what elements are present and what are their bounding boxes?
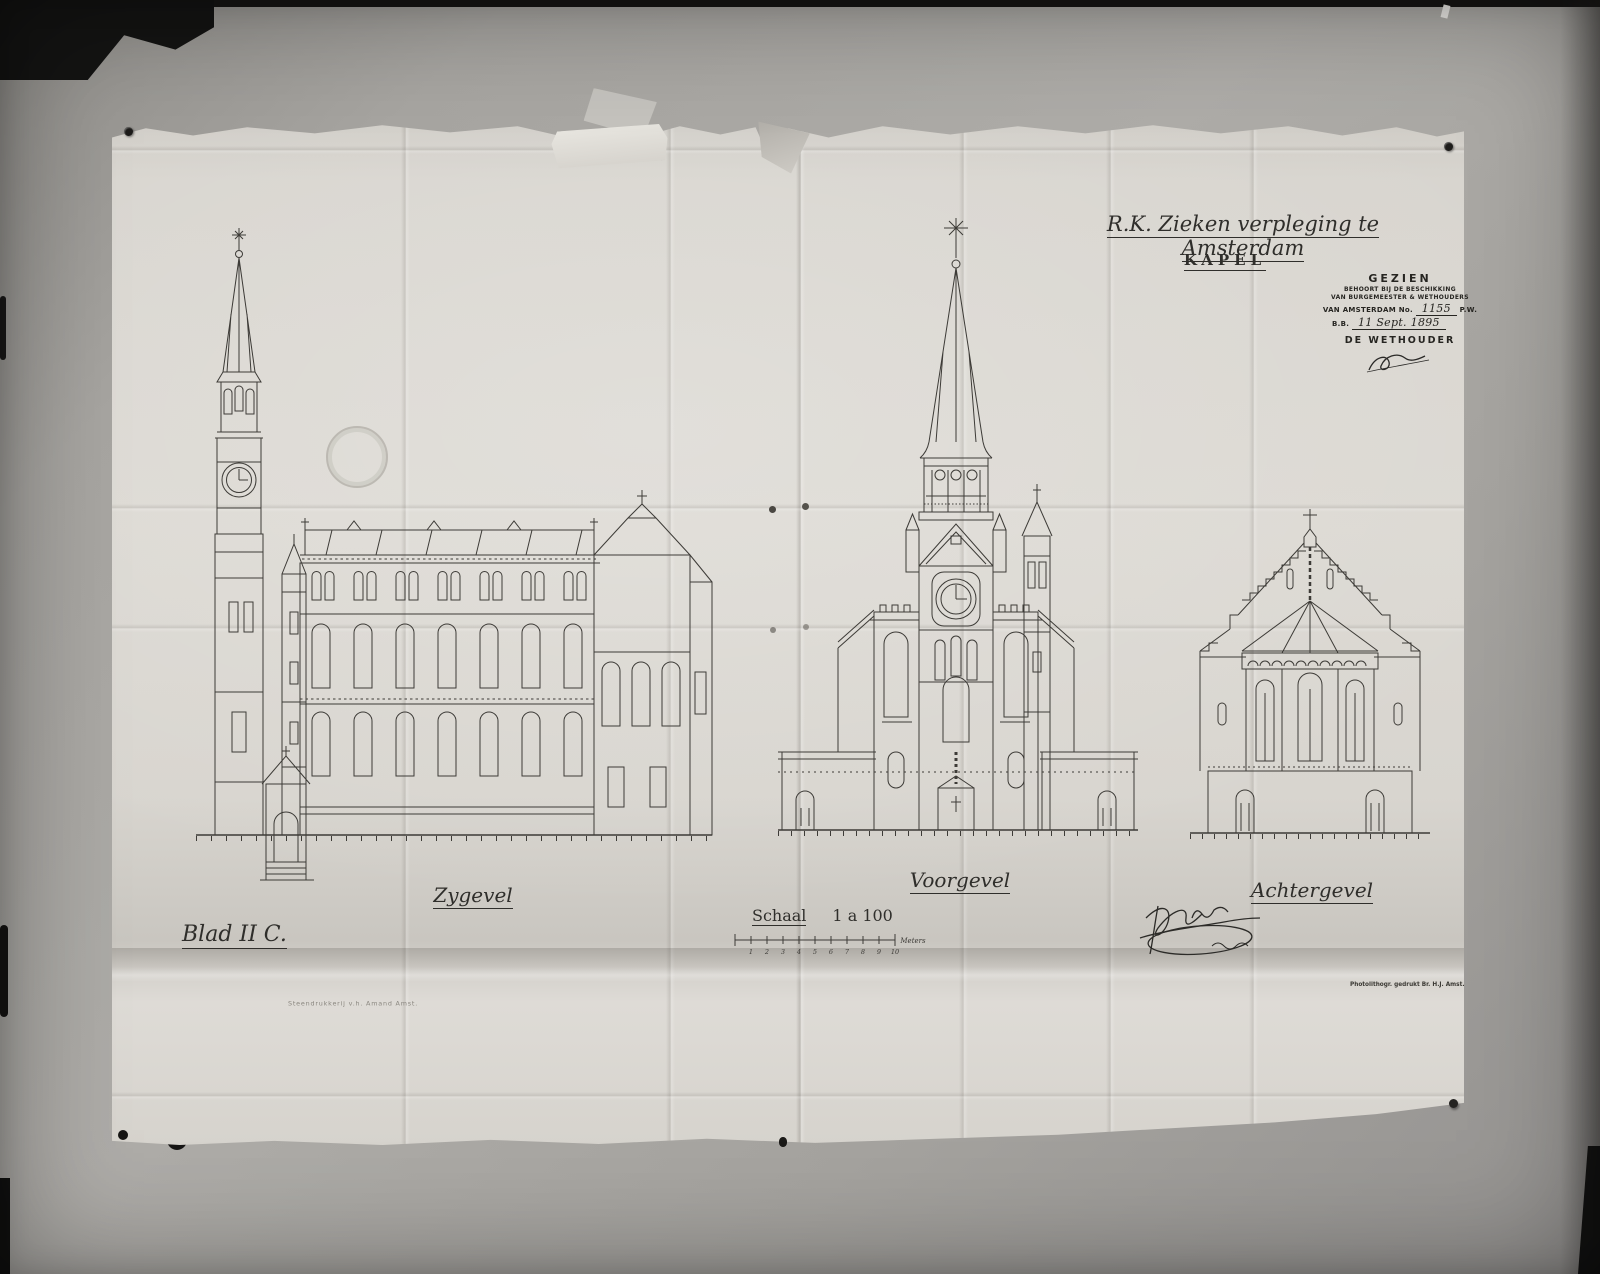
drawing-subtitle: KAPEL xyxy=(1160,250,1290,269)
scale-tick: 9 xyxy=(877,948,881,956)
wall-mark-left-1 xyxy=(0,296,6,360)
wall-dark-corner-top-left xyxy=(0,0,214,80)
wall-pin-glint-top-right xyxy=(1441,4,1451,18)
scale-bar: 1 2 3 4 5 6 7 8 9 10 Meters xyxy=(733,930,933,960)
scale-tick: 4 xyxy=(796,948,801,956)
wall-dark-column-right xyxy=(1560,0,1600,1274)
scale-tick: 1 xyxy=(749,948,753,956)
imprint-right: Photolithogr. gedrukt Br. H.J. Amst. xyxy=(1350,981,1465,987)
imprint-left: Steendrukkerij v.h. Amand Amst. xyxy=(288,1000,418,1007)
scale-tick: 2 xyxy=(764,948,769,956)
scale-tick: 6 xyxy=(829,948,833,956)
scale-tick: 7 xyxy=(845,948,850,956)
scale-tick: 5 xyxy=(813,948,817,956)
pin-top-right xyxy=(1444,142,1453,151)
wall-mark-left-2 xyxy=(0,925,8,1017)
architect-signature xyxy=(1128,888,1268,968)
stamp-line3: VAN BURGEMEESTER & WETHOUDERS xyxy=(1328,293,1472,300)
scale-label: Schaal xyxy=(752,906,806,926)
pin-bottom-left xyxy=(118,1130,128,1140)
scale-ratio: 1 a 100 xyxy=(832,906,892,926)
label-zygevel: Zygevel xyxy=(408,883,538,907)
punch-hole xyxy=(769,506,776,513)
achtergevel-drawing xyxy=(1190,503,1430,843)
stamp-seen: GEZIEN xyxy=(1322,272,1478,285)
scale-tick: 8 xyxy=(861,948,865,956)
alderman-signature xyxy=(1365,348,1435,378)
scale-tick: 3 xyxy=(781,948,785,956)
stamp-line5: B.B. 11 Sept. 1895 xyxy=(1322,316,1478,329)
pin-top-left xyxy=(124,127,133,136)
punch-hole xyxy=(770,627,776,633)
voorgevel-drawing xyxy=(778,212,1138,842)
stamp-line4: VAN AMSTERDAM No. 1155 P.W. xyxy=(1322,302,1478,315)
stamp-officer: DE WETHOUDER xyxy=(1322,335,1478,346)
sheet-number: Blad II C. xyxy=(182,922,287,947)
label-voorgevel: Voorgevel xyxy=(895,868,1025,892)
pin-bottom-center xyxy=(779,1137,787,1147)
pin-bottom-right xyxy=(1449,1099,1458,1108)
approval-stamp: GEZIEN BEHOORT BIJ DE BESCHIKKING VAN BU… xyxy=(1322,272,1478,382)
photograph-of-architectural-drawing: R.K. Zieken verpleging te Amsterdam KAPE… xyxy=(0,0,1600,1274)
paper-crease xyxy=(112,1092,1464,1100)
photo-top-edge xyxy=(0,0,1600,7)
stamp-line2: BEHOORT BIJ DE BESCHIKKING xyxy=(1328,285,1472,292)
drawing-subtitle-text: KAPEL xyxy=(1184,251,1266,271)
scale-caption: Schaal 1 a 100 xyxy=(752,906,912,926)
scale-unit: Meters xyxy=(899,937,926,945)
zygevel-drawing xyxy=(182,222,712,882)
stamp-number-handwritten: 1155 xyxy=(1416,302,1457,316)
wall-mark-left-3 xyxy=(0,1178,10,1274)
stamp-date-handwritten: 11 Sept. 1895 xyxy=(1352,316,1446,330)
scale-tick: 10 xyxy=(891,948,899,956)
